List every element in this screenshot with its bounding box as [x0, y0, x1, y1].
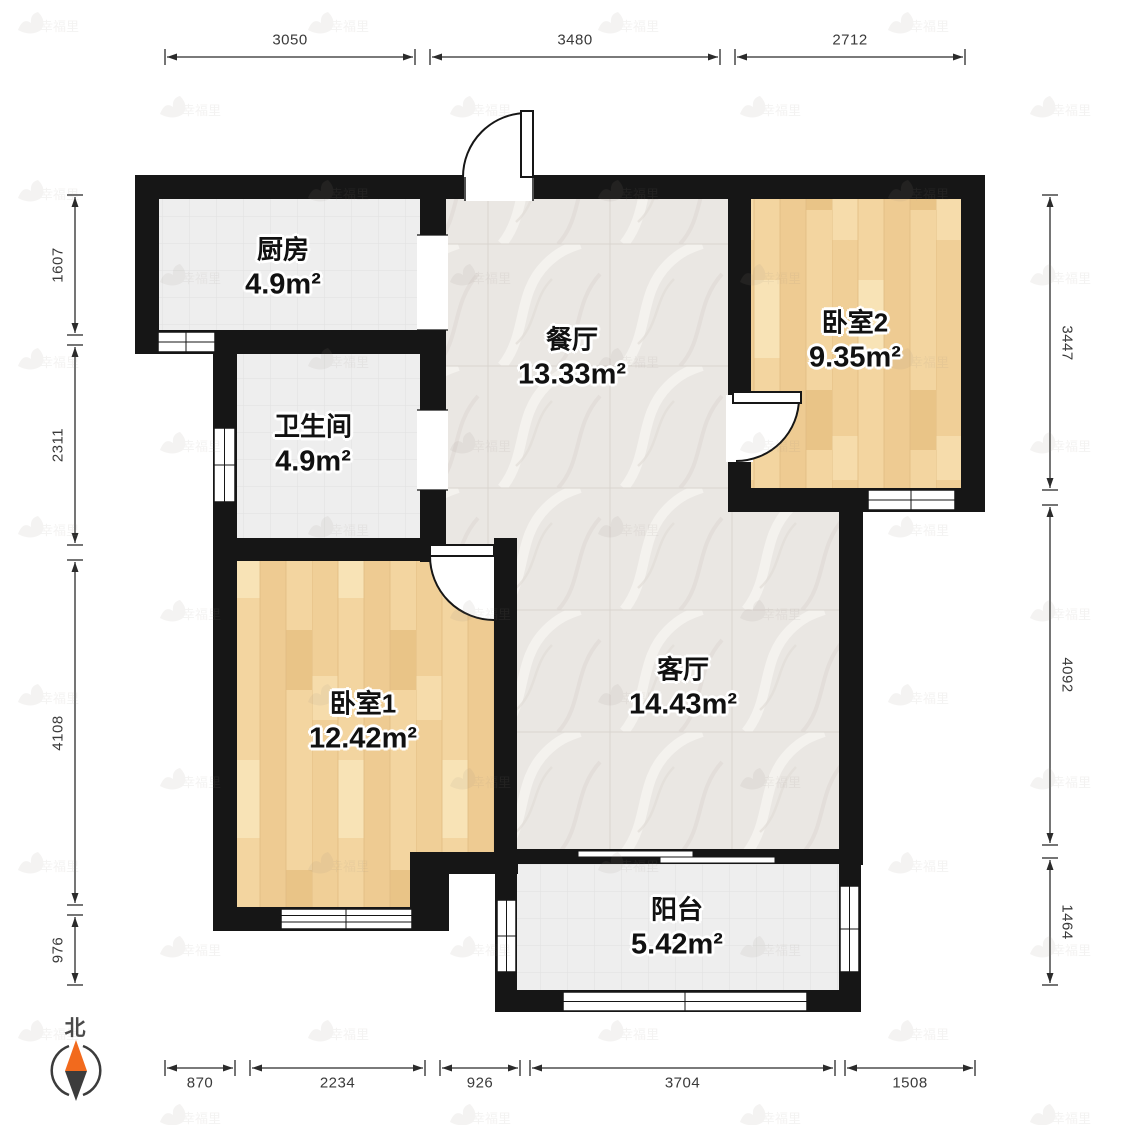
floorplan-drawing: 幸福里 幸福里: [0, 0, 1125, 1125]
floorplan-page: 幸福里 幸福里: [0, 0, 1125, 1125]
watermark-layer: [0, 0, 1125, 1125]
